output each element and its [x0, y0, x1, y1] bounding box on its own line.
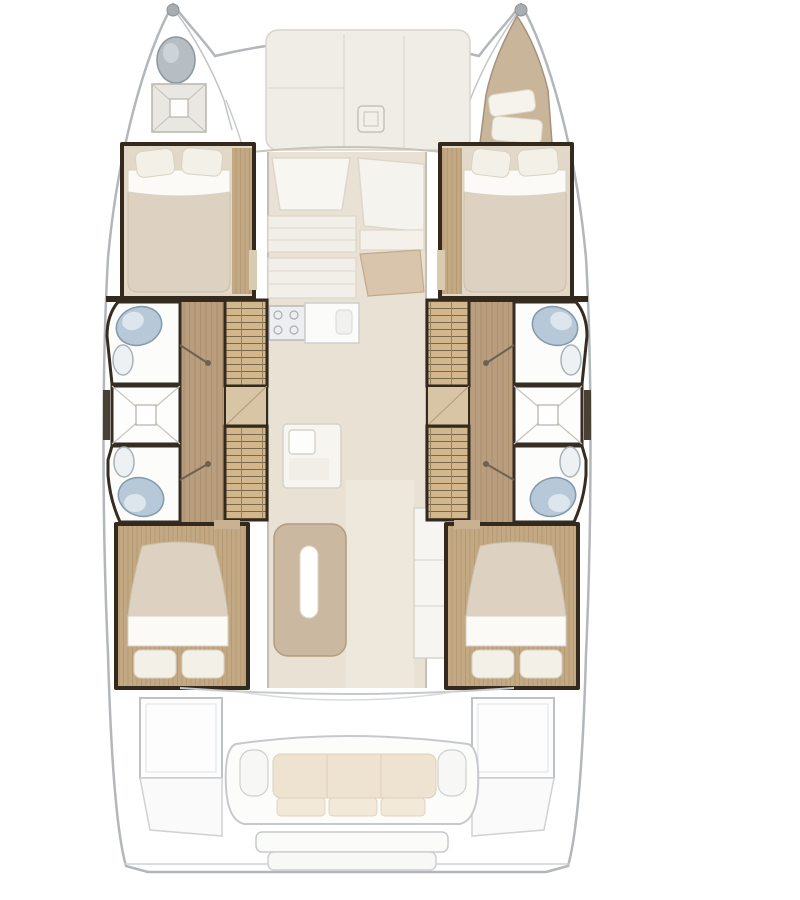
shower-port-pan [136, 405, 156, 425]
hull-window-starboard [584, 390, 591, 440]
cockpit-locker-port [140, 698, 222, 778]
floor-plan-page [0, 0, 800, 900]
toilet-lower-starboard-lid [548, 494, 570, 512]
bed-aft-starboard-pillow-2 [520, 650, 562, 678]
cabin-forward-starboard-door-gap [437, 250, 445, 290]
cockpit-sofa-seat-1 [277, 798, 325, 816]
bow-berth-cushion-2 [491, 116, 543, 144]
bed-aft-starboard-sheet [466, 616, 566, 646]
cockpit-sofa-armrest-starboard [438, 750, 466, 796]
cockpit-locker-starboard-skirt [472, 778, 554, 836]
cabin-aft-starboard-door-gap [454, 520, 480, 529]
saloon-bench-mid [268, 216, 356, 252]
bed-forward-starboard-duvet [464, 188, 566, 292]
catamaran-floor-plan [0, 0, 800, 900]
cockpit-locker-port-skirt [140, 778, 222, 836]
hull-floor-starboard-mid [470, 300, 514, 524]
galley-island-shelf [289, 458, 329, 480]
windlass-port-highlight [163, 43, 179, 63]
bed-aft-port-pillow-2 [182, 650, 224, 678]
foredeck-hatch [358, 106, 384, 132]
cockpit-sofa-seat-2 [329, 798, 377, 816]
saloon-settee-forward [272, 158, 350, 210]
saloon-aft-walkway [346, 480, 414, 688]
saloon-table-insert [300, 546, 318, 618]
bed-aft-port-duvet [128, 542, 228, 618]
shower-starboard-pan [538, 405, 558, 425]
bed-forward-starboard-pillow-2 [517, 147, 559, 176]
transom-step-1 [256, 832, 448, 852]
door-knob-lower-starboard [483, 461, 489, 467]
bed-forward-port-pillow-1 [135, 148, 176, 178]
sink-upper-port [113, 345, 133, 375]
saloon-shelf-starboard [360, 230, 424, 250]
dinette-table-tan [360, 250, 424, 296]
stairs-starboard-lower [427, 426, 469, 520]
galley-island-appliance [289, 430, 315, 454]
bed-aft-starboard-pillow-1 [472, 650, 514, 678]
door-knob-upper-port [205, 360, 211, 366]
cockpit-sofa-back-cushion [273, 754, 436, 798]
cockpit-locker-starboard [472, 698, 554, 778]
aft-cabinet-column-starboard [414, 508, 446, 658]
bow-tip-fitting-starboard [515, 4, 527, 16]
stairs-port-lower [225, 426, 267, 520]
cockpit-sofa-armrest-port [240, 750, 268, 796]
hull-floor-port-mid [180, 300, 224, 524]
door-knob-lower-port [205, 461, 211, 467]
floor-plan-shapes [103, 4, 591, 872]
hull-window-port [103, 390, 110, 440]
transom-step-2 [268, 852, 436, 870]
sink-lower-port [114, 447, 134, 477]
stairs-port-upper [225, 300, 267, 386]
door-knob-upper-starboard [483, 360, 489, 366]
bed-forward-starboard-pillow-1 [471, 148, 512, 178]
bed-aft-port-sheet [128, 616, 228, 646]
galley-stove [269, 306, 305, 340]
stairs-starboard-upper [427, 300, 469, 386]
sink-lower-starboard [560, 447, 580, 477]
toilet-lower-port-lid [124, 494, 146, 512]
cabin-forward-port-door-gap [249, 250, 257, 290]
cabin-aft-port-door-gap [214, 520, 240, 529]
bed-aft-port-pillow-1 [134, 650, 176, 678]
anchor-locker-hatch [170, 99, 188, 117]
saloon-panel-starboard [358, 158, 424, 232]
galley-sink [336, 310, 352, 334]
sink-upper-starboard [561, 345, 581, 375]
saloon-bench-low [268, 258, 356, 298]
cockpit-sofa-seat-3 [381, 798, 425, 816]
bed-forward-port-duvet [128, 188, 230, 292]
bow-tip-fitting-port [167, 4, 179, 16]
bed-aft-starboard-duvet [466, 542, 566, 618]
bed-forward-port-pillow-2 [181, 147, 223, 176]
